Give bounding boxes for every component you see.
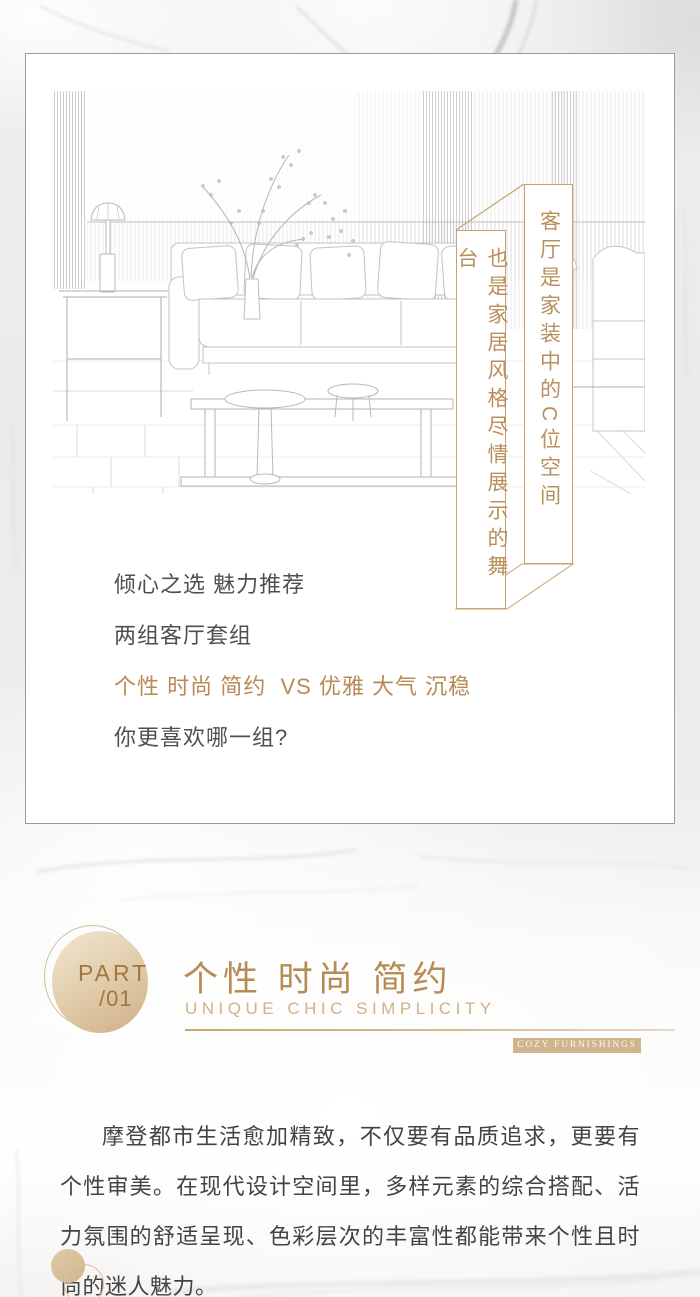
part-badge: PART /01 xyxy=(52,931,148,1033)
body-paragraph: 摩登都市生活愈加精致，不仅要有品质追求，更要有个性审美。在现代设计空间里，多样元… xyxy=(60,1112,640,1297)
gold-divider xyxy=(185,1029,675,1031)
vertical-banner-right: 客厅是家装中的C位空间 xyxy=(524,184,573,564)
promo-page: 倾心之选 魅力推荐 两组客厅套组 个性 时尚 简约 VS 优雅 大气 沉稳 你更… xyxy=(0,0,700,1297)
intro-line-question: 你更喜欢哪一组? xyxy=(114,720,288,752)
section-title: 个性 时尚 简约 xyxy=(183,951,452,1002)
decor-circle-outline xyxy=(64,1264,104,1297)
intro-line-1: 倾心之选 魅力推荐 xyxy=(114,567,305,599)
round-table xyxy=(225,390,305,484)
section-subtitle: UNIQUE CHIC SIMPLICITY xyxy=(185,999,496,1019)
coffee-table xyxy=(181,399,463,486)
intro-line-highlight: 个性 时尚 简约 VS 优雅 大气 沉稳 xyxy=(114,669,471,701)
right-sofa xyxy=(593,246,645,431)
side-table xyxy=(59,291,171,421)
hero-card: 倾心之选 魅力推荐 两组客厅套组 个性 时尚 简约 VS 优雅 大气 沉稳 你更… xyxy=(25,53,675,824)
part-label: PART xyxy=(78,960,149,987)
banner-right-text: 客厅是家装中的C位空间 xyxy=(534,185,564,563)
banner-left-text: 也是家居风格尽情展示的舞台 xyxy=(451,231,511,608)
part-number: /01 xyxy=(99,986,133,1012)
brand-tag: COZY FURNISHINGS xyxy=(513,1038,641,1053)
intro-line-2: 两组客厅套组 xyxy=(114,618,252,650)
vertical-banner-left: 也是家居风格尽情展示的舞台 xyxy=(456,230,506,609)
